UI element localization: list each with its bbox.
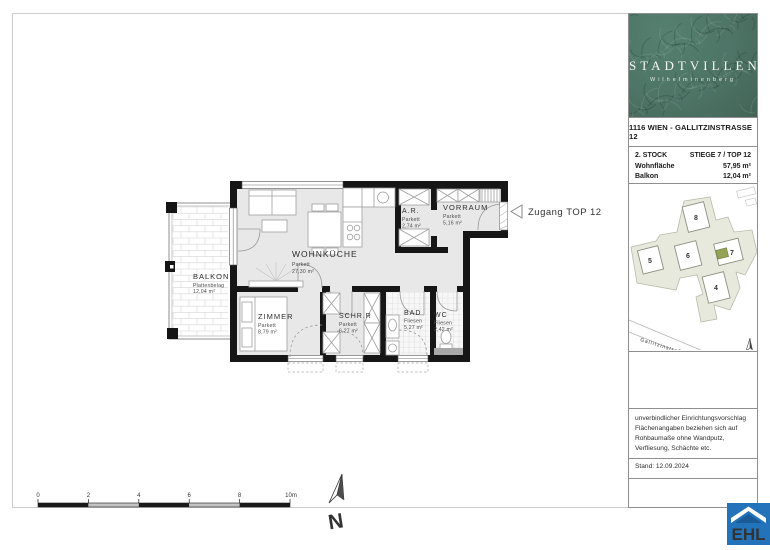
date-stamp: Stand: 12.09.2024 [629, 458, 757, 478]
svg-text:5: 5 [648, 258, 652, 265]
sidebar: STADTVILLEN Wilhelminenberg 1116 WIEN - … [628, 13, 758, 508]
svg-text:Parkett: Parkett [292, 262, 310, 268]
room-vorraum: VORRAUM [443, 203, 488, 212]
svg-text:Parkett: Parkett [443, 214, 461, 220]
room-wc: WC [434, 312, 448, 319]
svg-text:4: 4 [137, 493, 141, 499]
scale-bar: 0 2 4 6 8 10m [36, 493, 297, 507]
info-row-balcony: Balkon 12,04 m² [635, 172, 751, 183]
unit-info-panel: 2. STOCK STIEGE 7 / TOP 12 Wohnfläche 57… [629, 146, 757, 183]
svg-text:10m: 10m [285, 493, 297, 499]
ehl-text: EHL [732, 525, 766, 544]
north-arrow-icon: N [327, 474, 346, 534]
svg-text:12,04 m²: 12,04 m² [193, 289, 215, 295]
address-text: 1116 WIEN - GALLITZINSTRASSE 12 [629, 123, 757, 141]
entrance-arrow-icon [511, 205, 522, 218]
site-north-icon: N [746, 338, 753, 350]
entrance-annotation: Zugang TOP 12 [511, 205, 602, 218]
brand-logo: STADTVILLEN Wilhelminenberg [629, 14, 757, 117]
svg-text:27,30 m²: 27,30 m² [292, 269, 314, 275]
room-wohnkueche: WOHNKÜCHE [292, 249, 358, 259]
svg-text:5,27 m²: 5,27 m² [404, 325, 423, 331]
ehl-logo-icon: EHL [727, 503, 770, 545]
brand-subtitle: Wilhelminenberg [629, 77, 757, 83]
svg-text:Fliesen: Fliesen [434, 321, 452, 327]
svg-text:Parkett: Parkett [339, 322, 357, 328]
address-panel: 1116 WIEN - GALLITZINSTRASSE 12 [629, 117, 757, 146]
svg-text:Parkett: Parkett [258, 323, 276, 329]
entrance-label: Zugang TOP 12 [528, 207, 602, 218]
room-balkon: BALKON [193, 272, 229, 281]
site-plan-map: Gallitzinstraße 4 5 6 7 8 N [629, 184, 757, 350]
svg-text:8: 8 [694, 215, 698, 222]
svg-text:2: 2 [87, 493, 91, 499]
svg-text:2,42 m²: 2,42 m² [434, 327, 453, 333]
empty-panel [629, 351, 757, 408]
dining-set-icon [308, 204, 341, 255]
street-lines [629, 320, 722, 350]
svg-text:Fliesen: Fliesen [404, 319, 422, 325]
site-plan: Gallitzinstraße 4 5 6 7 8 N [629, 183, 757, 351]
ehl-logo: EHL [727, 503, 770, 545]
brand-title: STADTVILLEN [629, 58, 757, 74]
shaft [434, 348, 463, 355]
svg-text:8: 8 [238, 493, 242, 499]
north-label: N [327, 509, 346, 534]
info-row-floor: 2. STOCK STIEGE 7 / TOP 12 [635, 151, 751, 162]
room-abstellraum: A.R. [402, 208, 420, 215]
street-label: Gallitzinstraße [639, 337, 686, 350]
room-zimmer: ZIMMER [258, 312, 294, 321]
svg-text:6,27 m²: 6,27 m² [339, 329, 358, 335]
svg-text:5,16 m²: 5,16 m² [443, 221, 462, 227]
coffee-table-icon [262, 220, 287, 232]
toilet-icon [440, 331, 452, 350]
room-bad: BAD [404, 310, 421, 317]
svg-text:6: 6 [686, 253, 690, 260]
balcony [165, 202, 230, 339]
sofa-icon [249, 190, 296, 215]
svg-text:7: 7 [730, 250, 734, 257]
svg-text:Parkett: Parkett [402, 217, 420, 223]
svg-text:8,79 m²: 8,79 m² [258, 330, 277, 336]
disclaimer: unverbindlicher Einrichtungsvorschlag Fl… [629, 408, 757, 458]
info-row-living-area: Wohnfläche 57,95 m² [635, 162, 751, 173]
room-schrankraum: SCHR.R [339, 313, 372, 320]
svg-text:0: 0 [36, 493, 40, 499]
svg-text:6: 6 [188, 493, 192, 499]
bath-fixtures [386, 315, 399, 355]
svg-text:4: 4 [714, 285, 718, 292]
svg-text:2,74 m²: 2,74 m² [402, 224, 421, 230]
